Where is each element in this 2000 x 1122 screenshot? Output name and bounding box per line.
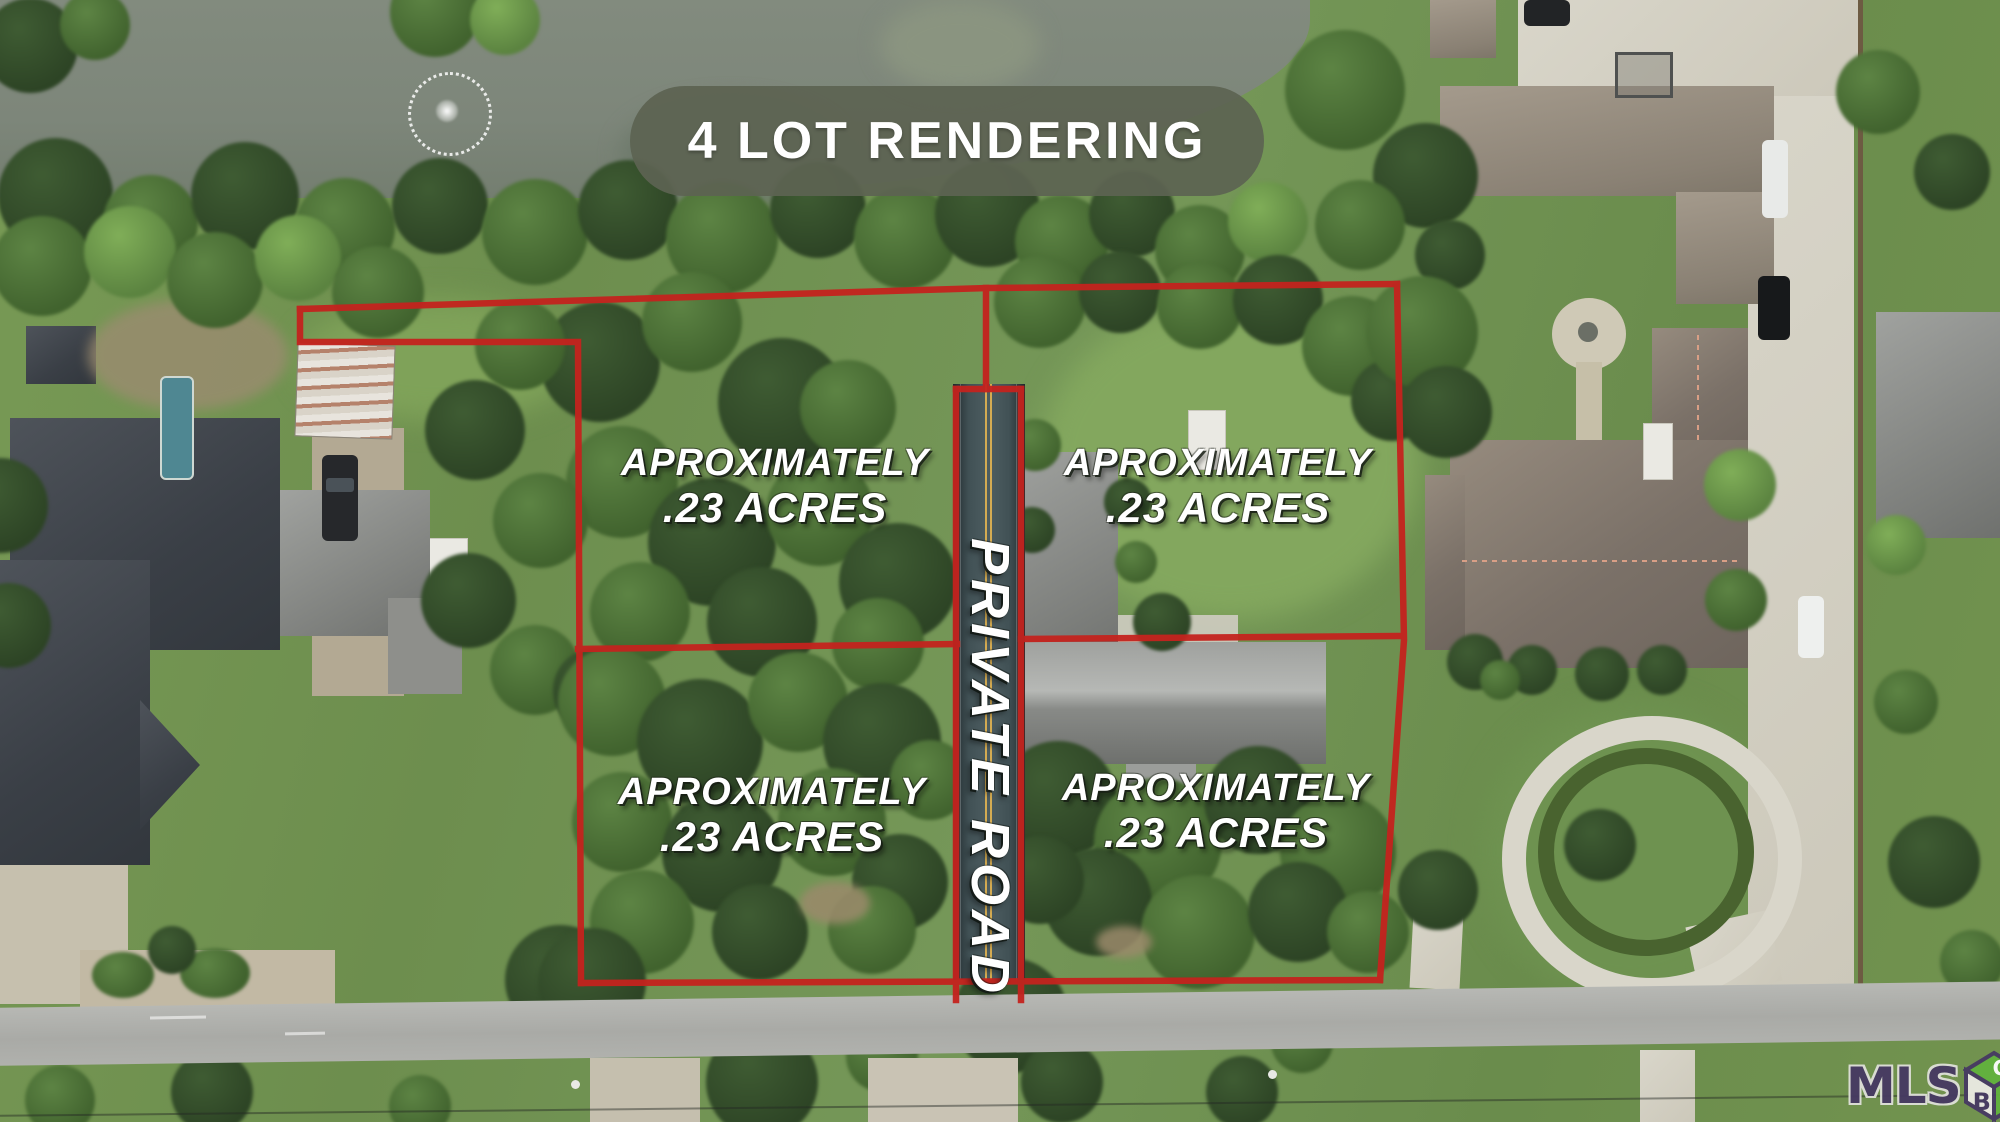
- lot-2-label: APROXIMATELY .23 ACRES: [1064, 443, 1372, 531]
- lot-3-label: APROXIMATELY .23 ACRES: [618, 772, 926, 860]
- page-title: 4 LOT RENDERING: [688, 111, 1207, 171]
- lot-4-label: APROXIMATELY .23 ACRES: [1062, 768, 1370, 856]
- mlsbox-watermark: MLS O B X: [1846, 1050, 2000, 1122]
- lot-3-label-line2: .23 ACRES: [618, 814, 926, 860]
- mls-logo-text: MLS: [1846, 1057, 1961, 1115]
- aerial-photo: APROXIMATELY .23 ACRES APROXIMATELY .23 …: [0, 0, 2000, 1122]
- lot-4-label-line1: APROXIMATELY: [1062, 768, 1370, 810]
- lot-2-label-line2: .23 ACRES: [1064, 485, 1372, 531]
- lot-1-label-line2: .23 ACRES: [621, 485, 929, 531]
- cube-letter-b: B: [1973, 1088, 1991, 1116]
- lot-1-label: APROXIMATELY .23 ACRES: [621, 443, 929, 531]
- private-road-label: PRIVATE ROAD: [959, 538, 1021, 998]
- title-banner: 4 LOT RENDERING: [630, 86, 1264, 196]
- cube-letter-o: O: [1993, 1056, 2000, 1080]
- lot-4-label-line2: .23 ACRES: [1062, 810, 1370, 856]
- lot-1-label-line1: APROXIMATELY: [621, 443, 929, 485]
- mlsbox-cube-icon: O B X: [1963, 1050, 2000, 1122]
- lot-3-label-line1: APROXIMATELY: [618, 772, 926, 814]
- lot-2-label-line1: APROXIMATELY: [1064, 443, 1372, 485]
